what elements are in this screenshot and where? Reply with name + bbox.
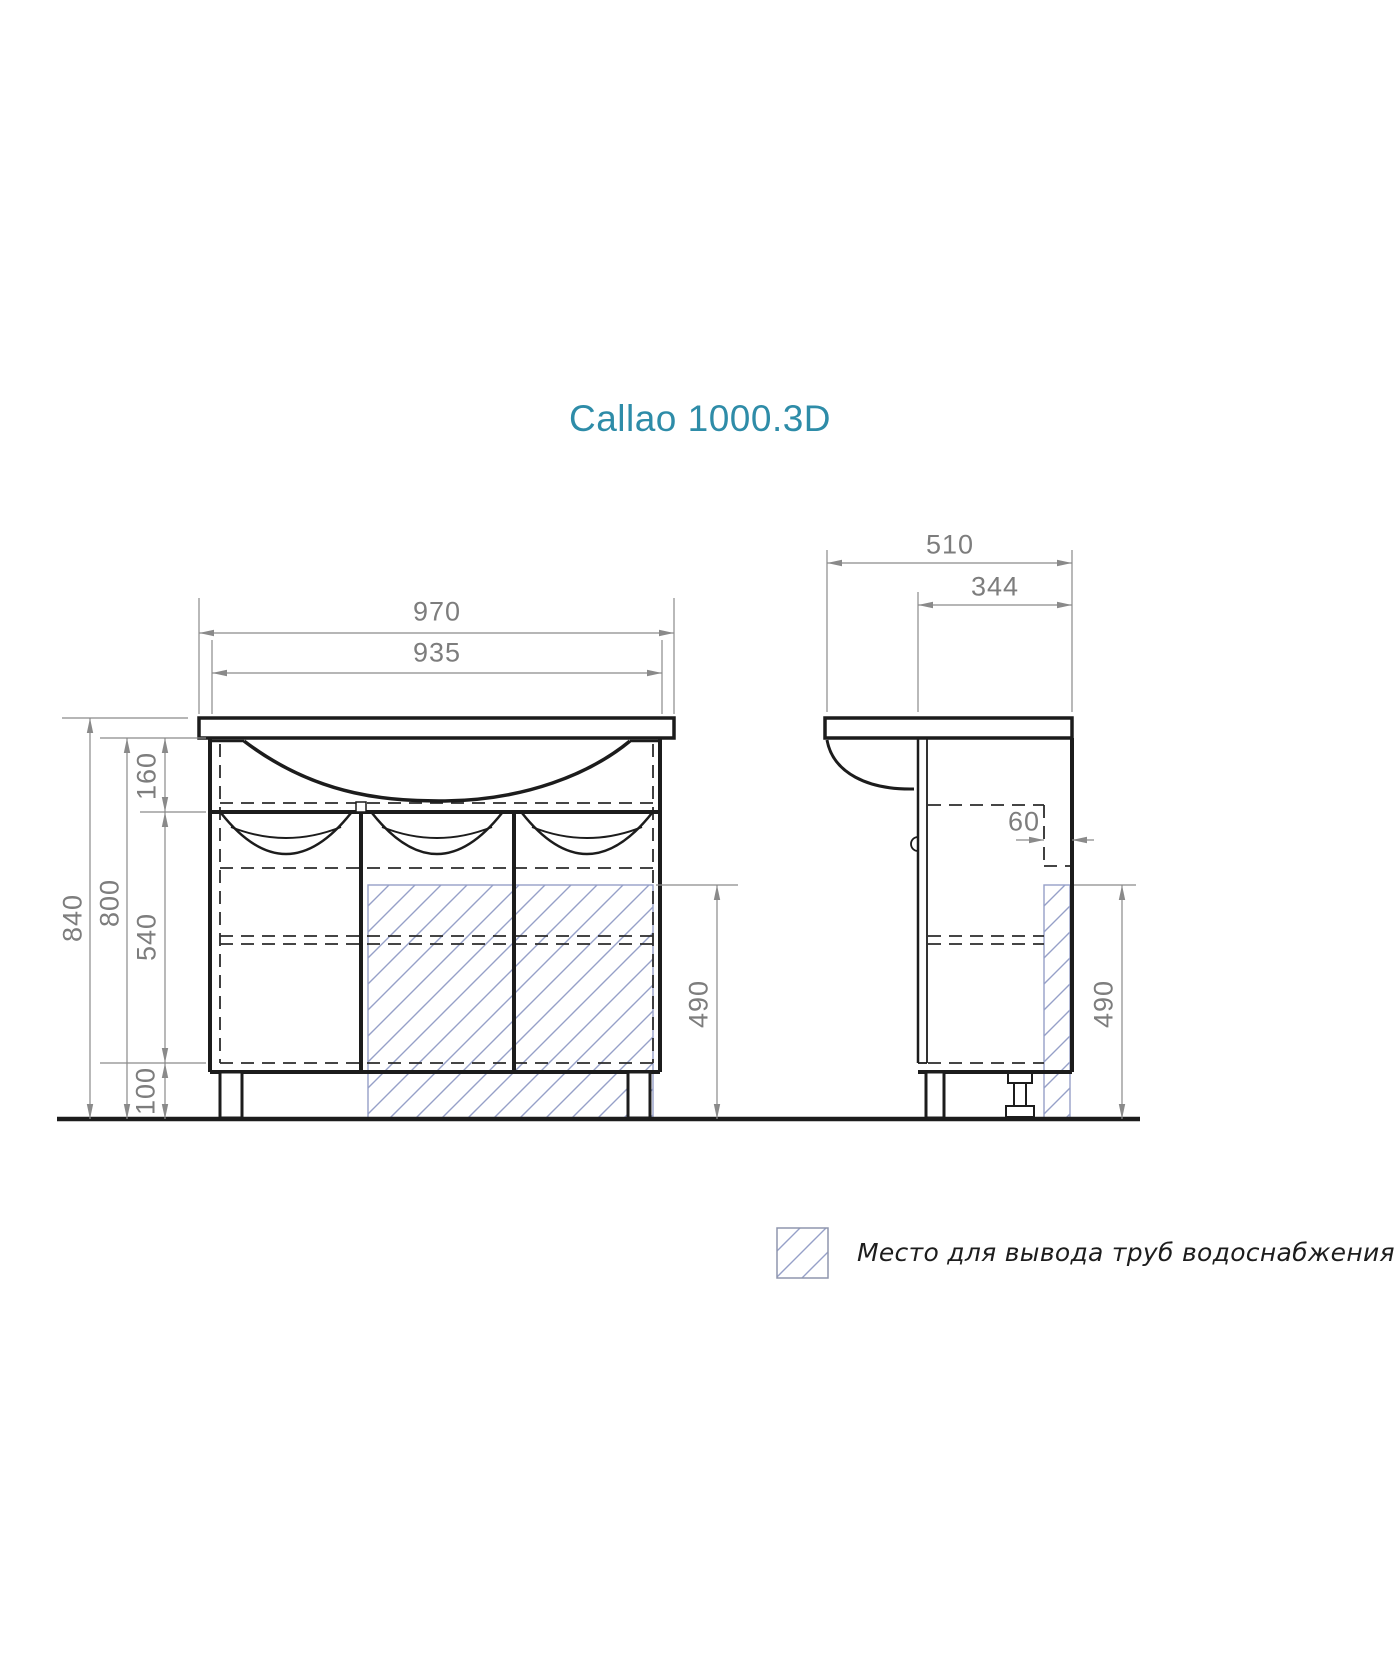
technical-drawing [0,0,1400,1660]
dim-front-pipe-zone-height: 490 [684,980,715,1028]
dim-front-apron-height: 160 [132,752,163,800]
front-countertop [199,718,674,738]
dim-front-overall-width: 970 [413,597,461,628]
front-view-drawing [199,718,674,1118]
drawing-canvas: Callao 1000.3D [0,0,1400,1660]
front-hinge-detail [356,802,366,812]
dim-front-door-height: 540 [132,913,163,961]
dim-side-body-depth: 344 [971,572,1019,603]
dim-front-body-height: 800 [95,879,126,927]
side-pipe-zone-hatch [1044,885,1070,1118]
legend-label: Место для вывода труб водоснабжения и ка… [857,1238,1400,1267]
side-view-drawing [825,718,1072,1118]
dim-side-overall-depth: 510 [926,530,974,561]
front-door-handles [221,813,652,854]
side-adjustable-foot [1006,1073,1034,1117]
front-pipe-zone-hatch [368,885,653,1118]
dim-side-pipe-zone-depth: 60 [1008,807,1040,838]
dim-side-pipe-zone-height: 490 [1089,980,1120,1028]
front-basin-curve [212,741,658,801]
side-countertop [825,718,1072,738]
dim-front-basin-width: 935 [413,638,461,669]
side-front-leg [926,1072,944,1118]
legend-hatch-swatch [777,1228,828,1278]
side-basin-curve [827,740,914,789]
dim-front-total-height: 840 [58,894,89,942]
dim-front-leg-height: 100 [131,1067,162,1115]
